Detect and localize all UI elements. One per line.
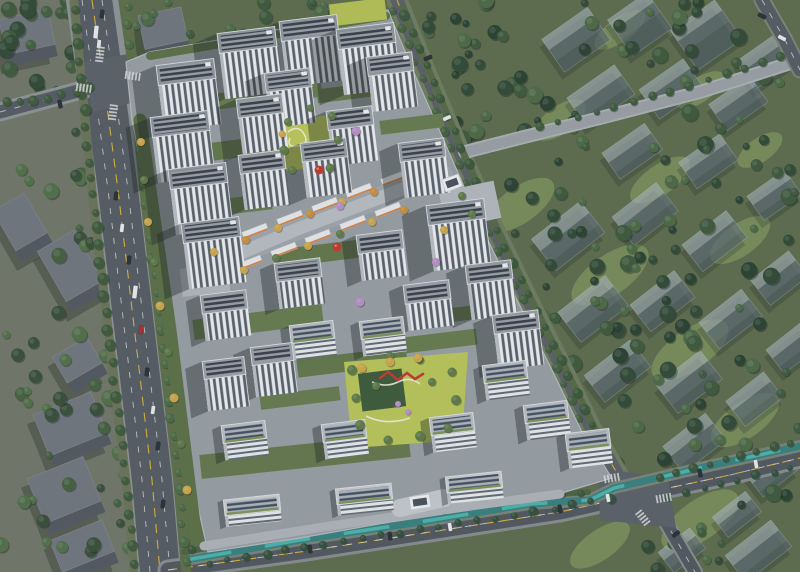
aerial-site-render [0, 0, 800, 572]
render-canvas [0, 0, 800, 572]
atmosphere-tint [0, 0, 800, 572]
